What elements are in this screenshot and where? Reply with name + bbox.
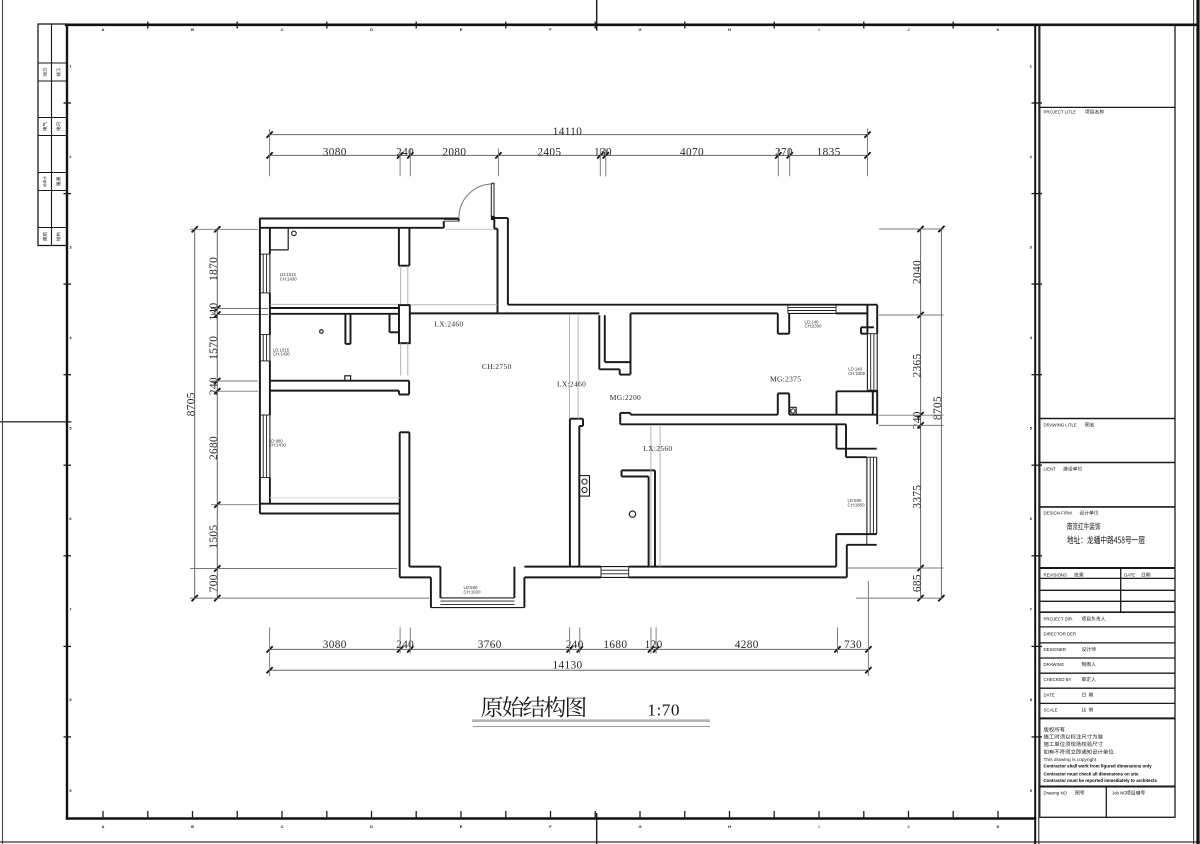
svg-text:Contractor shall work from fig: Contractor shall work from figured dimen…	[1044, 764, 1153, 769]
svg-text:REVISIONS: REVISIONS	[1044, 573, 1068, 578]
svg-text:H: H	[728, 27, 731, 32]
svg-text:J: J	[907, 824, 909, 829]
svg-text:B: B	[191, 824, 194, 829]
svg-text:6: 6	[1030, 516, 1033, 521]
svg-text:1:70: 1:70	[647, 700, 680, 719]
svg-text:CH:2300: CH:2300	[805, 324, 823, 329]
svg-text:8705: 8705	[185, 392, 197, 416]
svg-text:7: 7	[69, 607, 71, 612]
svg-text:130: 130	[594, 147, 612, 159]
svg-text:14130: 14130	[553, 660, 583, 672]
svg-text:4280: 4280	[735, 639, 759, 651]
svg-text:B: B	[191, 27, 194, 32]
svg-text:5: 5	[1030, 426, 1033, 431]
svg-text:2: 2	[69, 154, 72, 159]
svg-text:3760: 3760	[478, 639, 502, 651]
svg-text:4: 4	[1030, 335, 1033, 340]
svg-text:240: 240	[566, 639, 584, 651]
svg-text:8: 8	[69, 697, 72, 702]
svg-text:G: G	[638, 824, 641, 829]
svg-text:5: 5	[69, 426, 72, 431]
svg-text:9: 9	[69, 788, 72, 793]
svg-text:A: A	[102, 824, 105, 829]
svg-text:DESIGN FIRM: DESIGN FIRM	[1044, 511, 1073, 516]
svg-text:C: C	[281, 27, 284, 32]
svg-text:Contractor must be reported im: Contractor must be reported immediately …	[1044, 778, 1158, 783]
svg-text:1505: 1505	[208, 525, 220, 549]
svg-text:CH:2300: CH:2300	[848, 371, 866, 376]
svg-text:2405: 2405	[537, 147, 561, 159]
svg-text:240: 240	[911, 411, 923, 429]
svg-text:1870: 1870	[208, 257, 220, 281]
svg-text:I: I	[818, 27, 819, 32]
svg-text:CH:2750: CH:2750	[482, 362, 512, 371]
svg-text:LX:2460: LX:2460	[434, 319, 463, 328]
svg-text:1835: 1835	[817, 147, 841, 159]
svg-text:8705: 8705	[932, 396, 944, 420]
svg-text:14110: 14110	[553, 126, 583, 138]
svg-text:1: 1	[1030, 63, 1033, 68]
svg-text:Contractor must check all dime: Contractor must check all dimensions on …	[1044, 772, 1139, 777]
svg-text:MG:2375: MG:2375	[770, 375, 801, 384]
svg-text:1680: 1680	[603, 639, 627, 651]
svg-text:E: E	[460, 824, 463, 829]
svg-text:This drawing is copyright: This drawing is copyright	[1044, 757, 1097, 763]
svg-text:240: 240	[396, 639, 414, 651]
svg-text:F: F	[549, 824, 552, 829]
svg-text:4070: 4070	[680, 147, 704, 159]
svg-text:DIRECTOR DER: DIRECTOR DER	[1044, 632, 1077, 637]
svg-text:685: 685	[911, 574, 923, 592]
svg-text:C: C	[281, 824, 284, 829]
svg-text:2: 2	[1030, 154, 1033, 159]
svg-text:PROJECT DIR.: PROJECT DIR.	[1044, 617, 1074, 622]
svg-text:CH:1430: CH:1430	[273, 352, 291, 357]
svg-text:J: J	[907, 27, 909, 32]
svg-text:E: E	[460, 27, 463, 32]
svg-text:DRAWING: DRAWING	[1044, 662, 1065, 667]
svg-text:140: 140	[208, 303, 220, 321]
svg-text:2365: 2365	[911, 354, 923, 378]
svg-text:730: 730	[844, 639, 862, 651]
svg-text:270: 270	[775, 147, 793, 159]
svg-text:2680: 2680	[208, 436, 220, 460]
svg-text:A: A	[102, 27, 105, 32]
svg-text:K: K	[997, 824, 1000, 829]
svg-text:LX:2460: LX:2460	[557, 379, 586, 388]
svg-text:Job NO: Job NO	[1112, 791, 1127, 796]
svg-text:7: 7	[1030, 607, 1032, 612]
svg-text:3080: 3080	[323, 639, 347, 651]
svg-text:PROJECT LITLE: PROJECT LITLE	[1044, 110, 1077, 115]
svg-text:9: 9	[1030, 788, 1033, 793]
svg-text:3375: 3375	[911, 485, 923, 509]
svg-text:3: 3	[69, 244, 72, 249]
svg-text:240: 240	[396, 147, 414, 159]
svg-text:240: 240	[208, 377, 220, 395]
svg-text:DATE: DATE	[1044, 693, 1055, 698]
svg-text:CH:1850: CH:1850	[848, 502, 866, 507]
svg-text:G: G	[638, 27, 641, 32]
svg-text:D: D	[370, 27, 373, 32]
svg-text:1570: 1570	[208, 336, 220, 360]
svg-text:8: 8	[1030, 697, 1033, 702]
svg-text:K: K	[997, 27, 1000, 32]
svg-text:1: 1	[69, 63, 72, 68]
svg-text:H: H	[728, 824, 731, 829]
svg-text:F: F	[549, 27, 552, 32]
svg-text:6: 6	[69, 516, 72, 521]
svg-text:I: I	[818, 824, 819, 829]
svg-text:LX:2560: LX:2560	[643, 444, 672, 453]
svg-text:CH:1930: CH:1930	[464, 589, 482, 594]
svg-text:CHECKED BY: CHECKED BY	[1044, 677, 1072, 682]
svg-text:120: 120	[645, 639, 663, 651]
svg-text:700: 700	[208, 574, 220, 592]
svg-text:4: 4	[69, 335, 72, 340]
svg-text:DRAWING LITLE: DRAWING LITLE	[1044, 423, 1077, 428]
svg-text:CH:1430: CH:1430	[280, 276, 298, 281]
svg-text:3080: 3080	[323, 147, 347, 159]
svg-text:Drawing NO: Drawing NO	[1044, 791, 1068, 796]
svg-text:3: 3	[1030, 244, 1033, 249]
svg-text:2040: 2040	[911, 260, 923, 284]
svg-text:LIENT: LIENT	[1044, 467, 1057, 472]
svg-text:SCALE: SCALE	[1044, 708, 1058, 713]
svg-text:CH:1430: CH:1430	[269, 443, 287, 448]
svg-text:DATE: DATE	[1124, 573, 1135, 578]
svg-text:DESIGNER: DESIGNER	[1044, 647, 1066, 652]
svg-text:2080: 2080	[442, 147, 466, 159]
svg-text:MG:2200: MG:2200	[610, 393, 641, 402]
svg-text:D: D	[370, 824, 373, 829]
